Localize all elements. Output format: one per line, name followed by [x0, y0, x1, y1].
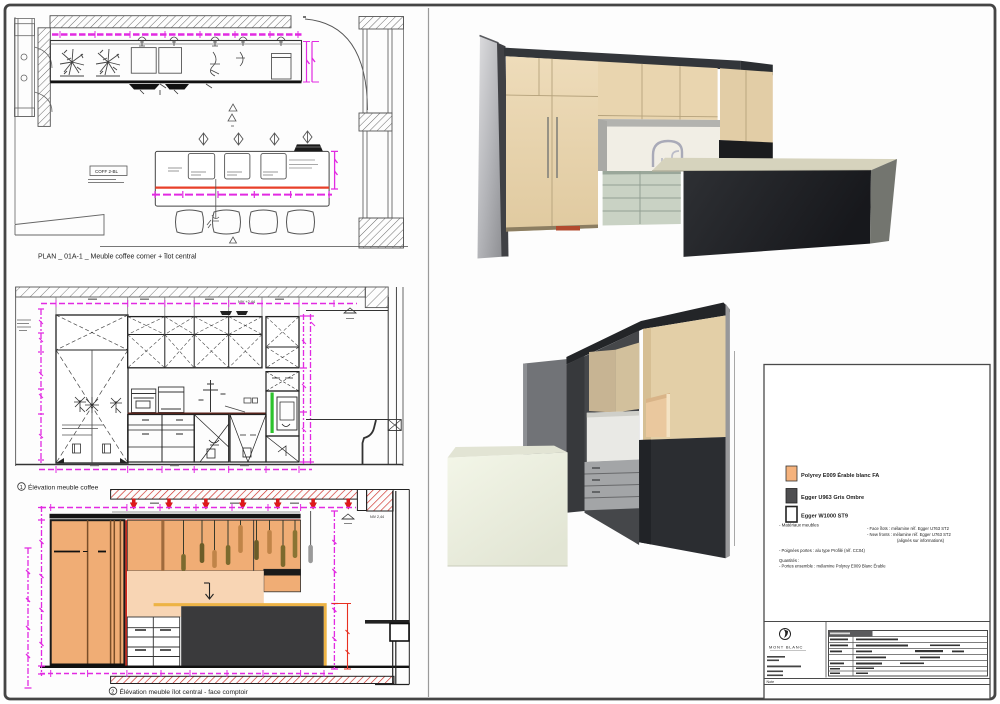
svg-text:(alignés sur informations): (alignés sur informations)	[897, 538, 945, 543]
svg-text:- Poignées portes : alu type P: - Poignées portes : alu type Profilé (ré…	[779, 548, 865, 553]
svg-text:Egger W1000 ST9: Egger W1000 ST9	[801, 514, 848, 520]
svg-text:Note: Note	[767, 680, 775, 684]
svg-text:Polyrey E009 Érable blanc FA: Polyrey E009 Érable blanc FA	[801, 471, 879, 479]
svg-text:Élévation meuble coffee: Élévation meuble coffee	[28, 483, 99, 492]
svg-text:COFF 2-BL: COFF 2-BL	[95, 169, 119, 174]
svg-text:Egger U963 Gris Ombre: Egger U963 Gris Ombre	[801, 495, 864, 501]
svg-text:- New fronts : mélamine réf. E: - New fronts : mélamine réf. Egger U763 …	[867, 532, 951, 537]
svg-text:Quantités :: Quantités :	[779, 558, 799, 563]
svg-text:- Matériaux meubles: - Matériaux meubles	[779, 523, 820, 528]
svg-text:NIV 2,44: NIV 2,44	[370, 515, 384, 519]
svg-text:PLAN _ 01A-1 _ Meuble coff: PLAN _ 01A-1 _ Meuble coffee corner + îl…	[38, 254, 197, 261]
svg-text:2: 2	[111, 689, 114, 695]
svg-text:MONT BLANC: MONT BLANC	[769, 645, 803, 650]
svg-text:1: 1	[20, 485, 23, 491]
svg-text:- Face îlots : mélamine réf. E: - Face îlots : mélamine réf. Egger U763 …	[867, 526, 950, 531]
svg-text:- Portes ensemble : mélamine P: - Portes ensemble : mélamine Polyrey E00…	[779, 564, 886, 569]
svg-text:Élévation meuble îlot central: Élévation meuble îlot central - face com…	[120, 687, 249, 696]
